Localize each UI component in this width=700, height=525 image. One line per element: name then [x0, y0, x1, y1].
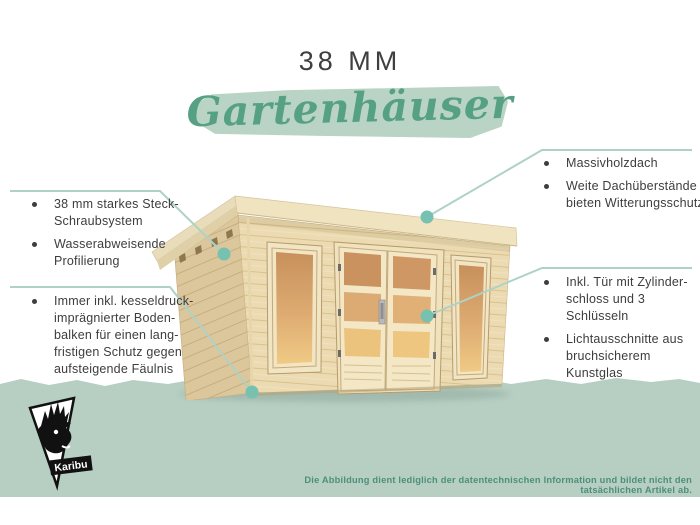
- door-glass-pane: [393, 331, 430, 358]
- left-window-glass: [276, 252, 313, 364]
- bullet-icon: [32, 299, 37, 304]
- bullet-icon: [544, 161, 549, 166]
- callout-text: Immer inkl. kesseldruck- imprägnierter B…: [54, 294, 194, 376]
- callout-item: Immer inkl. kesseldruck- imprägnierter B…: [28, 293, 238, 378]
- double-door: [334, 242, 444, 394]
- door-glass-pane: [393, 256, 431, 290]
- right-window: [451, 255, 491, 380]
- callout-item: Wasserabweisende Profilierung: [28, 236, 233, 270]
- callout-left-bottom: Immer inkl. kesseldruck- imprägnierter B…: [28, 293, 238, 384]
- callout-text: Inkl. Tür mit Zylinder- schloss und 3 Sc…: [566, 275, 688, 323]
- disclaimer-text: Die Abbildung dient lediglich der datent…: [280, 475, 692, 495]
- door-glass-pane: [393, 295, 431, 324]
- callout-item: Weite Dachüberstände bieten Witterungssc…: [540, 178, 700, 212]
- right-window-glass: [459, 265, 484, 372]
- bullet-icon: [544, 280, 549, 285]
- bullet-icon: [544, 184, 549, 189]
- bullet-icon: [32, 242, 37, 247]
- callout-right-top: Massivholzdach Weite Dachüberstände biet…: [540, 155, 700, 218]
- page-title: 38 MM: [0, 46, 700, 77]
- callout-text: Weite Dachüberstände bieten Witterungssc…: [566, 179, 700, 210]
- page: 38 MM Gartenhäuser 38 mm starkes Steck- …: [0, 0, 700, 525]
- callout-item: Inkl. Tür mit Zylinder- schloss und 3 Sc…: [540, 274, 700, 325]
- bullet-icon: [32, 202, 37, 207]
- callout-text: Massivholzdach: [566, 156, 658, 170]
- left-window: [267, 242, 322, 374]
- category-title: Gartenhäuser: [0, 75, 700, 141]
- callout-text: 38 mm starkes Steck- Schraubsystem: [54, 197, 179, 228]
- callout-item: 38 mm starkes Steck- Schraubsystem: [28, 196, 233, 230]
- door-glass-pane: [344, 292, 381, 322]
- callout-item: Massivholzdach: [540, 155, 700, 172]
- callout-item: Lichtausschnitte aus bruchsicherem Kunst…: [540, 331, 700, 382]
- karibu-logo: Karibu: [22, 394, 100, 498]
- callout-left-top: 38 mm starkes Steck- Schraubsystem Wasse…: [28, 196, 233, 276]
- door-glass-pane: [344, 328, 381, 357]
- door-glass-pane: [344, 252, 381, 287]
- callout-text: Wasserabweisende Profilierung: [54, 237, 166, 268]
- callout-right-bottom: Inkl. Tür mit Zylinder- schloss und 3 Sc…: [540, 274, 700, 388]
- callout-text: Lichtausschnitte aus bruchsicherem Kunst…: [566, 332, 683, 380]
- door-handle: [379, 300, 385, 324]
- bullet-icon: [544, 337, 549, 342]
